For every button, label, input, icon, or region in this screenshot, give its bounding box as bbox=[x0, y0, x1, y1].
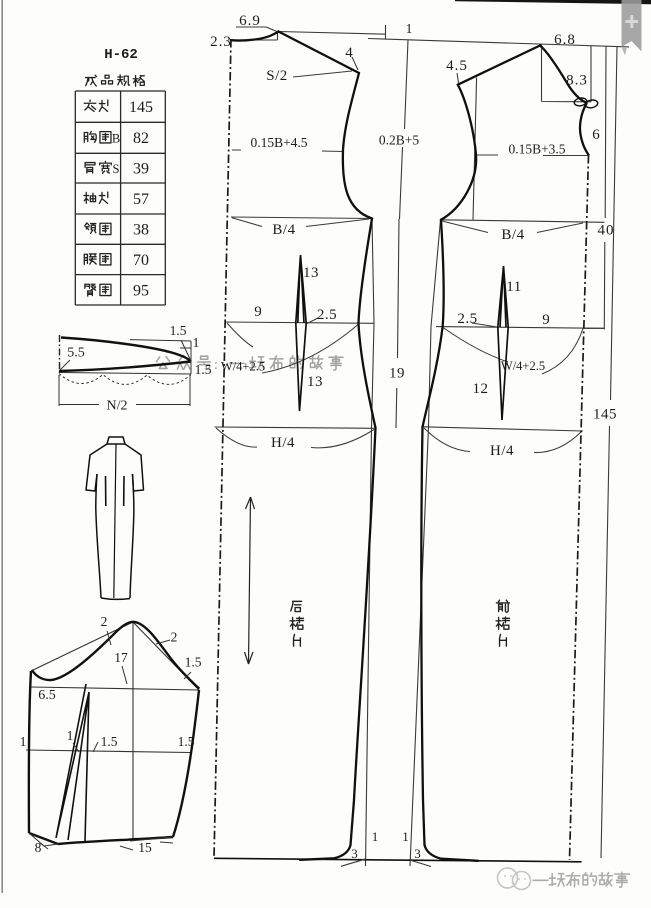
svg-text:145: 145 bbox=[593, 407, 617, 423]
svg-text:W/4+2.5: W/4+2.5 bbox=[221, 360, 265, 374]
svg-text:H/4: H/4 bbox=[271, 435, 295, 451]
svg-text:6.5: 6.5 bbox=[38, 688, 56, 703]
svg-text:W/4+2.5: W/4+2.5 bbox=[501, 359, 545, 373]
svg-text:0.15B+3.5: 0.15B+3.5 bbox=[508, 142, 565, 157]
svg-text:6.8: 6.8 bbox=[554, 32, 576, 48]
svg-text:4.5: 4.5 bbox=[446, 58, 468, 74]
svg-text:1: 1 bbox=[406, 21, 413, 36]
svg-text:39: 39 bbox=[133, 161, 149, 178]
svg-text:38: 38 bbox=[133, 222, 149, 239]
svg-text:N/2: N/2 bbox=[107, 399, 128, 414]
svg-text:9: 9 bbox=[254, 304, 262, 320]
svg-text:1.5: 1.5 bbox=[178, 734, 195, 749]
svg-text:5.5: 5.5 bbox=[67, 346, 85, 361]
svg-text:6.9: 6.9 bbox=[239, 13, 261, 29]
svg-text:1: 1 bbox=[402, 829, 409, 844]
svg-text:0.2B+5: 0.2B+5 bbox=[379, 133, 419, 148]
svg-text:1: 1 bbox=[67, 728, 74, 743]
svg-text:1: 1 bbox=[20, 734, 27, 749]
svg-text:1.5: 1.5 bbox=[101, 734, 118, 749]
svg-text:1.5: 1.5 bbox=[195, 362, 212, 377]
svg-text:2: 2 bbox=[171, 630, 178, 645]
svg-text:4: 4 bbox=[345, 45, 353, 61]
svg-text:15: 15 bbox=[138, 840, 152, 855]
svg-text:1: 1 bbox=[193, 335, 200, 350]
svg-text:8: 8 bbox=[35, 840, 42, 855]
svg-text:17: 17 bbox=[114, 650, 128, 665]
svg-text:19: 19 bbox=[389, 366, 405, 382]
svg-text:B: B bbox=[112, 132, 120, 146]
svg-text:145: 145 bbox=[129, 99, 153, 116]
svg-text:12: 12 bbox=[473, 381, 489, 397]
svg-text:0.15B+4.5: 0.15B+4.5 bbox=[250, 135, 307, 150]
svg-text:3: 3 bbox=[351, 846, 358, 861]
svg-text:6: 6 bbox=[592, 127, 600, 143]
svg-text:2.5: 2.5 bbox=[457, 311, 477, 327]
svg-text:13: 13 bbox=[303, 265, 319, 281]
svg-text:1.5: 1.5 bbox=[170, 323, 187, 338]
svg-text:1: 1 bbox=[372, 829, 379, 844]
svg-text:B/4: B/4 bbox=[272, 222, 295, 238]
svg-text:B/4: B/4 bbox=[501, 227, 524, 243]
svg-text:2: 2 bbox=[101, 614, 108, 629]
svg-text:H/4: H/4 bbox=[490, 443, 514, 459]
svg-text::: : bbox=[214, 357, 218, 373]
svg-text:S: S bbox=[113, 162, 120, 176]
svg-text:3: 3 bbox=[414, 846, 421, 861]
svg-text:70: 70 bbox=[133, 252, 149, 269]
svg-text:40: 40 bbox=[598, 223, 615, 239]
svg-text:95: 95 bbox=[133, 283, 149, 300]
svg-text:2.3: 2.3 bbox=[210, 34, 232, 50]
svg-text:57: 57 bbox=[133, 191, 149, 208]
svg-text:13: 13 bbox=[307, 374, 323, 390]
svg-text:9: 9 bbox=[542, 312, 550, 328]
svg-text:11: 11 bbox=[506, 279, 521, 295]
svg-text:82: 82 bbox=[133, 130, 149, 147]
svg-text:H-62: H-62 bbox=[104, 47, 138, 63]
svg-text:1.5: 1.5 bbox=[185, 655, 202, 670]
svg-text:8.3: 8.3 bbox=[566, 73, 588, 89]
svg-text:2.5: 2.5 bbox=[317, 307, 337, 323]
svg-text:S/2: S/2 bbox=[266, 68, 288, 84]
